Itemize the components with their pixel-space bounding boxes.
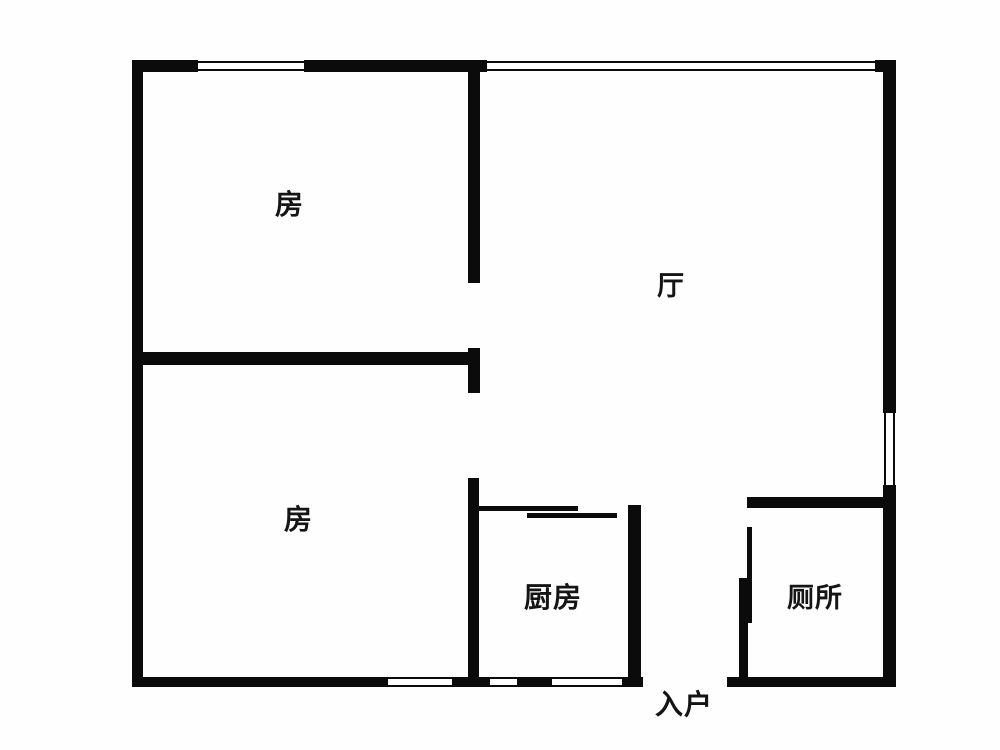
wall-outer-bottom-segment-3 [517, 677, 552, 687]
kitchen-sliding-door-line-1 [478, 506, 578, 511]
label-toilet: 厕所 [787, 585, 843, 612]
label-living-room: 厅 [657, 273, 685, 300]
wall-toilet-top [747, 497, 895, 508]
kitchen-sliding-door-line-2 [527, 513, 617, 518]
wall-divider-stub [468, 348, 480, 393]
wall-outer-left [132, 60, 143, 687]
wall-outer-right-segment-1 [883, 60, 896, 413]
wall-divider-upper [468, 60, 480, 283]
wall-outer-top-segment-2 [304, 60, 487, 72]
toilet-door-leaf [747, 527, 752, 623]
wall-kitchen-right [628, 505, 641, 687]
window-top-living [487, 61, 875, 71]
window-bottom-bedroom [388, 677, 452, 687]
window-bottom-kitchen-1 [490, 677, 517, 687]
label-bedroom-top: 房 [275, 191, 304, 219]
label-kitchen: 厨房 [524, 584, 582, 612]
label-entrance: 入户 [655, 691, 713, 719]
wall-between-bedrooms [132, 352, 468, 365]
floor-plan: 房 房 厅 厨房 厕所 入户 [0, 0, 1000, 750]
window-right-living [884, 413, 895, 485]
window-top-bedroom [198, 61, 304, 71]
window-bottom-kitchen-2 [552, 677, 622, 687]
wall-outer-bottom-segment-1 [132, 677, 388, 687]
wall-outer-bottom-segment-5 [727, 677, 895, 687]
wall-outer-top-segment-1 [132, 60, 198, 72]
label-bedroom-bottom: 房 [284, 506, 313, 534]
wall-outer-right-segment-2 [883, 485, 896, 687]
